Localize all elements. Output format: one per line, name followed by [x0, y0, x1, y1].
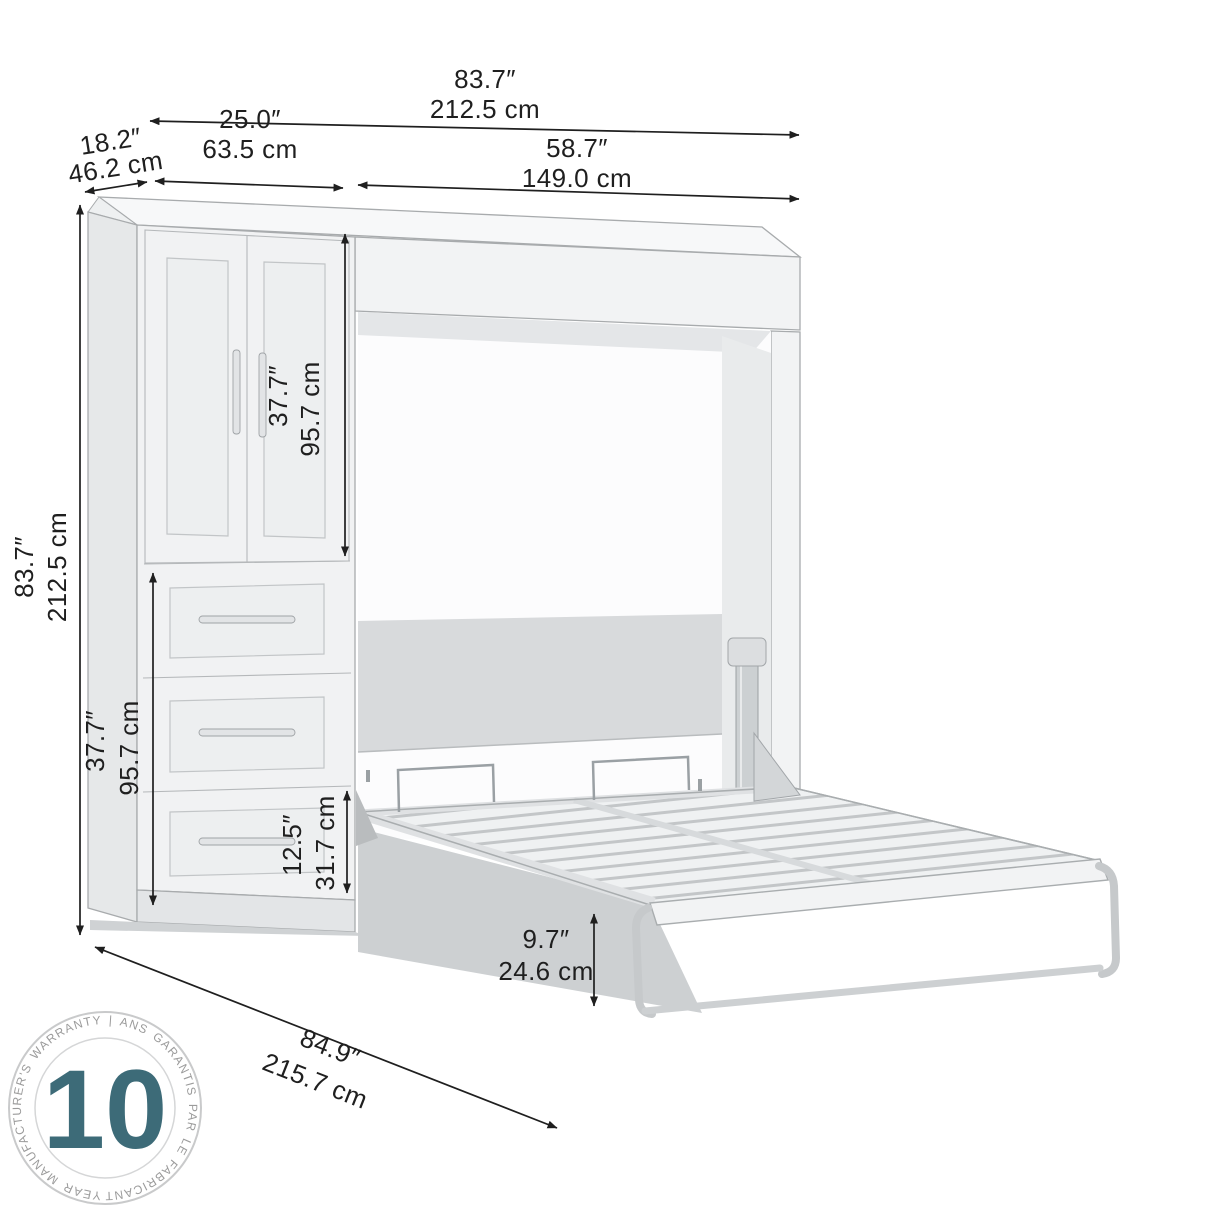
- drawer-1-handle: [199, 616, 295, 623]
- piston-cap: [728, 638, 766, 666]
- dim-cabinet-width-line: [155, 181, 343, 188]
- dim-cabinet-width-cm: 63.5 cm: [202, 134, 297, 164]
- dim-bed-height-inches: 9.7″: [523, 924, 570, 954]
- deck-bolt-right: [698, 779, 702, 791]
- bed-right-leg: [1099, 866, 1116, 974]
- dim-drawer-section-inches: 37.7″: [80, 710, 110, 772]
- dim-cabinet-width-inches: 25.0″: [219, 104, 281, 134]
- dim-bed-width-inches: 58.7″: [546, 133, 608, 163]
- badge-years-number: 10: [43, 1047, 168, 1172]
- leg-crossbar: [645, 968, 1100, 1011]
- bed-cavity-backwall: [358, 312, 771, 860]
- wall-bed-illustration: [88, 197, 1116, 1014]
- murphy-bed-dimension-diagram: 83.7″ 212.5 cm 58.7″ 149.0 cm 25.0″ 63.5…: [0, 0, 1214, 1214]
- dim-drawer-section-cm: 95.7 cm: [114, 700, 144, 795]
- headboard-panel: [358, 614, 722, 752]
- dim-overall-height-inches: 83.7″: [9, 536, 39, 598]
- dim-door-height-cm: 95.7 cm: [295, 361, 325, 456]
- left-door-handle: [233, 350, 240, 434]
- dim-overall-height-cm: 212.5 cm: [42, 512, 72, 622]
- drawer-2-handle: [199, 729, 295, 736]
- dim-door-height-inches: 37.7″: [263, 365, 293, 427]
- dim-bed-height-cm: 24.6 cm: [498, 956, 593, 986]
- deck-bolt-left: [366, 770, 370, 782]
- diagram-canvas: 83.7″ 212.5 cm 58.7″ 149.0 cm 25.0″ 63.5…: [0, 0, 1214, 1214]
- left-door-panel: [167, 258, 228, 536]
- cabinet-side-panel: [88, 212, 137, 922]
- dim-bed-width-cm: 149.0 cm: [522, 163, 632, 193]
- dim-overall-width-cm: 212.5 cm: [430, 94, 540, 124]
- dim-bottom-drawer-cm: 31.7 cm: [310, 795, 340, 890]
- dim-bottom-drawer-inches: 12.5″: [277, 814, 307, 876]
- dim-overall-width-inches: 83.7″: [454, 64, 516, 94]
